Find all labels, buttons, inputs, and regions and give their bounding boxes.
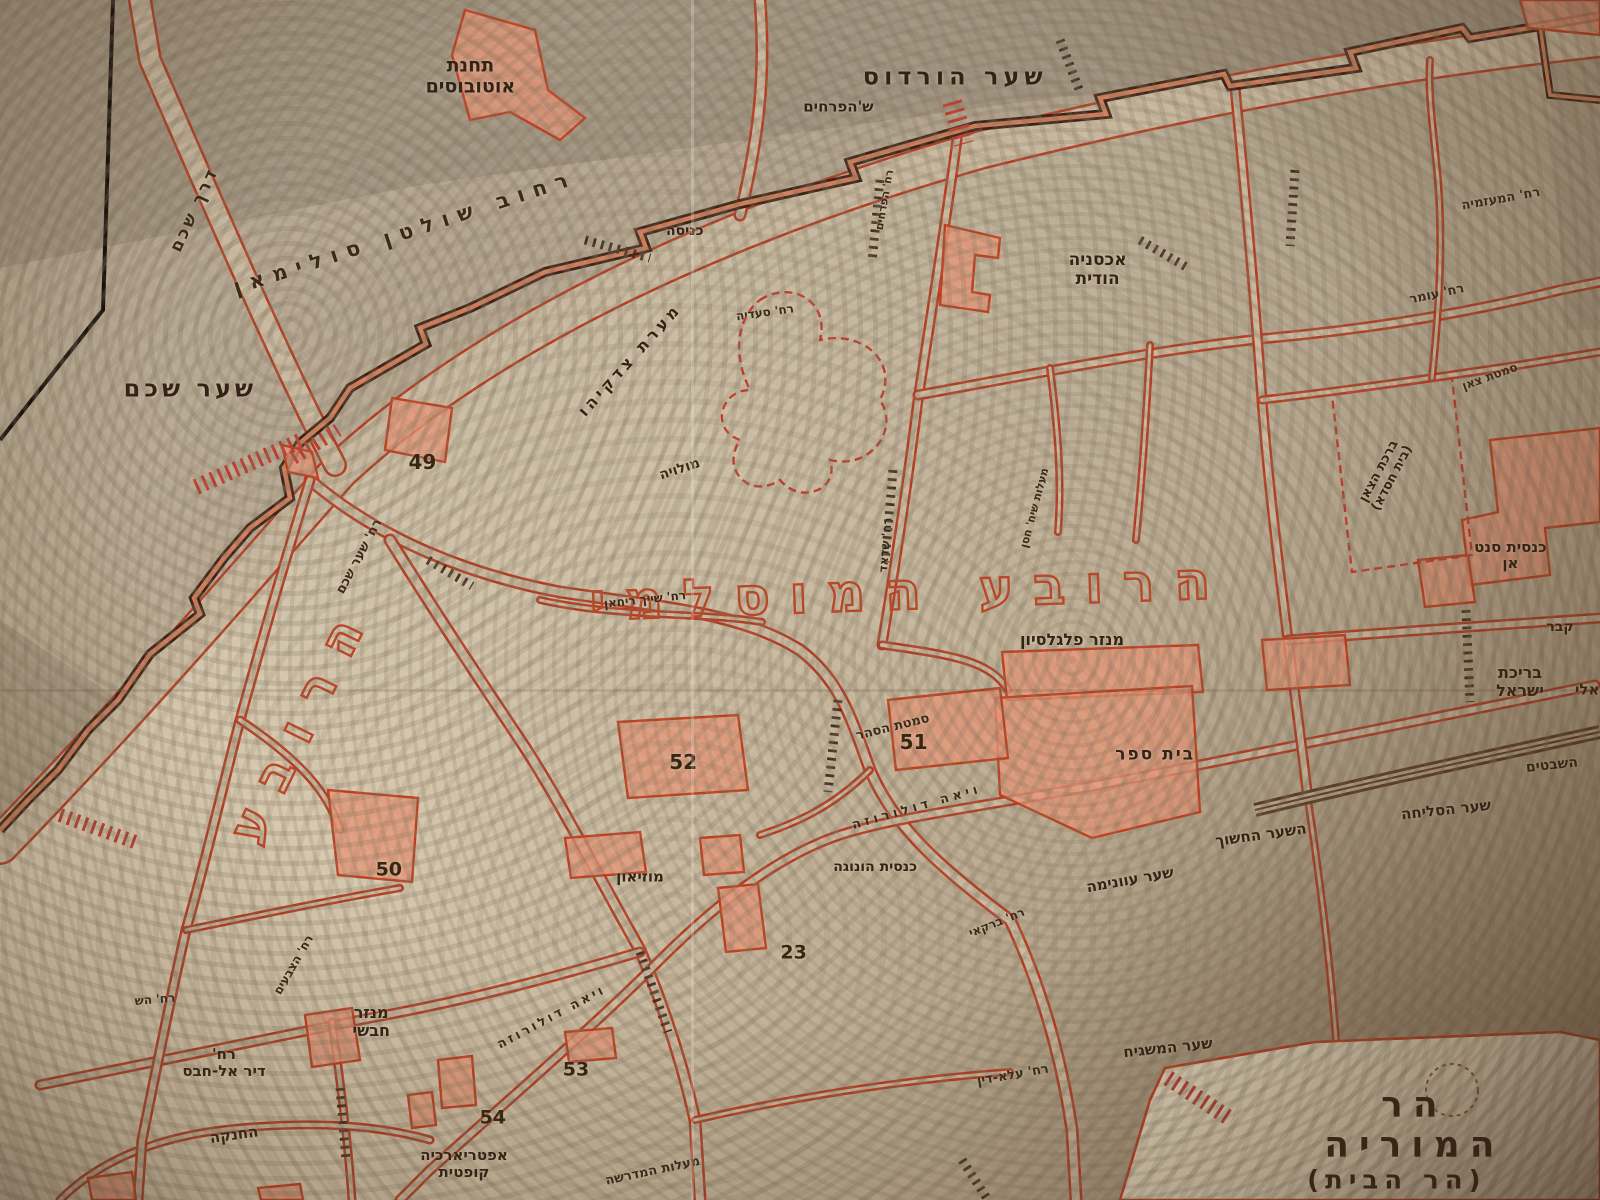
tzavaim-street-label: רח' הצבעים bbox=[272, 933, 317, 997]
molawiya-street-label: מולויה bbox=[658, 456, 703, 484]
honoga-church-label: כנסית הונוגה bbox=[833, 860, 917, 876]
deir-al-habs-street-label: רח' דיר אל-חבס bbox=[182, 1046, 265, 1080]
dark-gate-label: השער החשוך bbox=[1214, 820, 1307, 849]
flowers-gate-label: ש'הפרחים bbox=[803, 98, 873, 115]
via-dolorosa-west-label: ויאה דולורוזה bbox=[495, 983, 609, 1053]
museum-label: מוזיאון bbox=[616, 869, 664, 886]
number-51-label: 51 bbox=[900, 730, 928, 752]
school-label: בית ספר bbox=[1115, 745, 1195, 764]
barkai-street-label: רח' ברקאי bbox=[967, 906, 1027, 941]
st-anne-church-label: כנסית סנט אן bbox=[1466, 539, 1556, 573]
indian-hostel-label: אכסניה הודית bbox=[1069, 251, 1127, 289]
bethesda-pool-label: ברכת הצאן (בית חסדא) bbox=[1356, 437, 1415, 514]
flowers-street-label: רח' הפרחים bbox=[873, 169, 896, 231]
temple-mount-label: (הר הבית) bbox=[1307, 1166, 1486, 1195]
via-dolorosa-east-label: ויאה דולורוזה bbox=[850, 782, 983, 833]
israel-pool-label: בריכת ישראל bbox=[1480, 664, 1560, 700]
mashgiach-gate-label: שער המשגיח bbox=[1123, 1035, 1214, 1061]
bus-station-label: תחנת אוטובוסים bbox=[426, 56, 516, 99]
tzaan-alley-label: סמטת צאן bbox=[1460, 361, 1519, 393]
number-50-label: 50 bbox=[376, 859, 402, 880]
saadia-street-label: רח' סעדיה bbox=[735, 302, 795, 323]
tribes-partial-label: השבטים bbox=[1525, 755, 1579, 776]
shaar-shchem-street-label: רח' שער שכם bbox=[334, 517, 386, 597]
number-52-label: 52 bbox=[669, 751, 697, 773]
number-54-label: 54 bbox=[480, 1108, 506, 1129]
omar-street-label: רח' עומר bbox=[1408, 282, 1465, 308]
number-23-label: 23 bbox=[780, 942, 806, 963]
aladdin-street-label: רח' עלא-דין bbox=[976, 1063, 1050, 1090]
nablus-road-label: דרך שכם bbox=[167, 165, 223, 256]
number-49-label: 49 bbox=[408, 451, 436, 473]
herods-gate-label: שער הורדוס bbox=[863, 63, 1048, 90]
abyssinian-monastery-label: מנזר חבשי bbox=[352, 1004, 390, 1040]
selicha-gate-label: שער הסליחה bbox=[1401, 797, 1492, 823]
ghawanima-gate-label: שער עוונימה bbox=[1085, 864, 1175, 896]
mount-moriah-label: הר המוריה bbox=[1322, 1085, 1508, 1166]
damascus-gate-label: שער שכם bbox=[124, 375, 258, 402]
muazzamiya-street-label: רח' המעזמיה bbox=[1460, 186, 1541, 214]
map-labels-layer: תחנת אוטובוסיםשער הורדוסש'הפרחיםרחוב שול… bbox=[0, 0, 1600, 1200]
zedekiah-cave-label: מערת צדקיהו bbox=[575, 300, 685, 420]
sultan-suleiman-street-label: רחוב שולטן סולימאן bbox=[230, 166, 579, 299]
hash-street-partial-label: רח' הש bbox=[134, 991, 176, 1008]
midrasha-steps-label: מעלות המדרשה bbox=[604, 1155, 701, 1189]
coptic-patriarchate-label: אפטריארכיה קופטית bbox=[420, 1147, 508, 1181]
quarter-title-vertical-label: הרובע bbox=[217, 588, 384, 851]
khanqah-label: החנקה bbox=[208, 1123, 259, 1146]
old-city-map-photo: תחנת אוטובוסיםשער הורדוסש'הפרחיםרחוב שול… bbox=[0, 0, 1600, 1200]
number-53-label: 53 bbox=[563, 1060, 589, 1081]
muslim-quarter-title-label: הרובע המוסלמי bbox=[589, 551, 1231, 632]
flagellation-monastery-label: מנזר פלגלסיון bbox=[1020, 631, 1124, 649]
tomb-partial-label: קבר bbox=[1546, 620, 1573, 636]
maalot-sheikh-hasan-label: מעלות שיח' חסן bbox=[1019, 466, 1052, 549]
entrance-label: כניסה bbox=[666, 224, 704, 240]
eli-partial-label: אלי bbox=[1575, 682, 1599, 699]
